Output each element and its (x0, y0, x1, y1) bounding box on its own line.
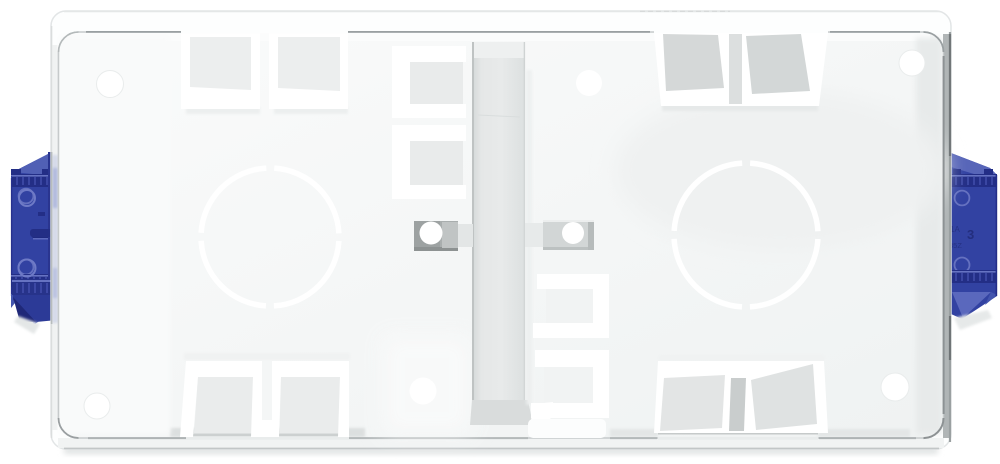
svg-text:3: 3 (967, 227, 974, 242)
